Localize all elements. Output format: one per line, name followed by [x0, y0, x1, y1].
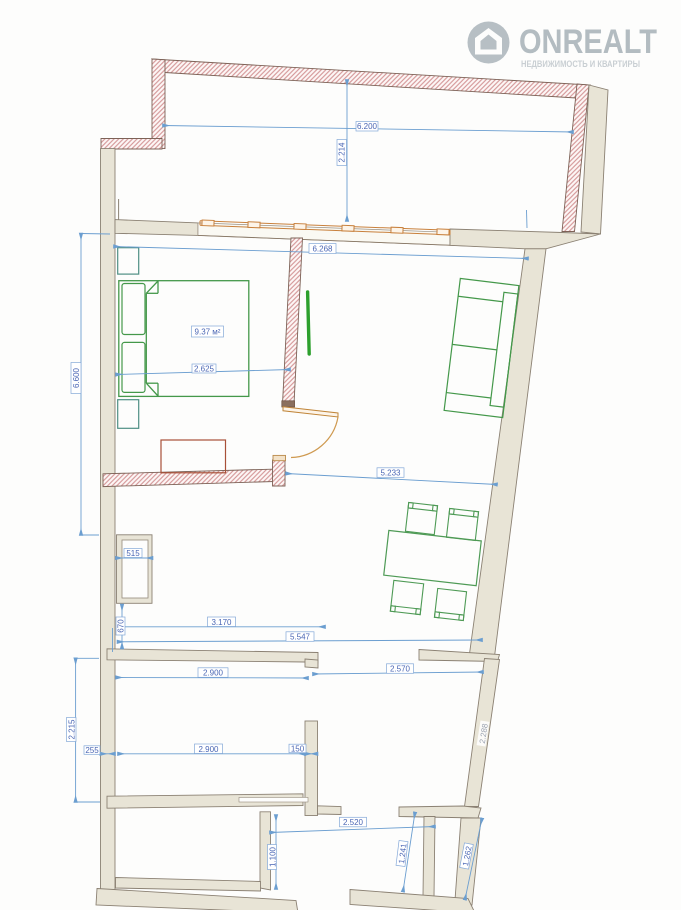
svg-text:3.170: 3.170 — [211, 618, 232, 627]
svg-text:670: 670 — [117, 619, 126, 633]
svg-text:2.625: 2.625 — [194, 365, 215, 374]
svg-text:255: 255 — [85, 746, 99, 755]
svg-text:2.215: 2.215 — [67, 719, 76, 740]
svg-text:515: 515 — [126, 549, 140, 558]
svg-text:9.37 м²: 9.37 м² — [195, 328, 221, 337]
svg-text:2.520: 2.520 — [343, 818, 364, 827]
svg-text:2.900: 2.900 — [198, 745, 219, 754]
svg-text:150: 150 — [291, 744, 305, 753]
svg-text:6.600: 6.600 — [72, 367, 81, 388]
svg-text:ONREALT: ONREALT — [519, 23, 657, 61]
svg-text:6.268: 6.268 — [312, 245, 333, 254]
svg-text:6.200: 6.200 — [357, 122, 378, 131]
svg-text:2.570: 2.570 — [390, 665, 411, 674]
svg-text:2.214: 2.214 — [338, 142, 347, 163]
svg-text:НЕДВИЖИМОСТЬ И КВАРТИРЫ: НЕДВИЖИМОСТЬ И КВАРТИРЫ — [521, 59, 640, 69]
svg-text:2.900: 2.900 — [203, 669, 224, 678]
svg-text:5.233: 5.233 — [380, 469, 401, 478]
svg-text:5.547: 5.547 — [290, 633, 311, 642]
svg-text:1.100: 1.100 — [268, 846, 277, 867]
